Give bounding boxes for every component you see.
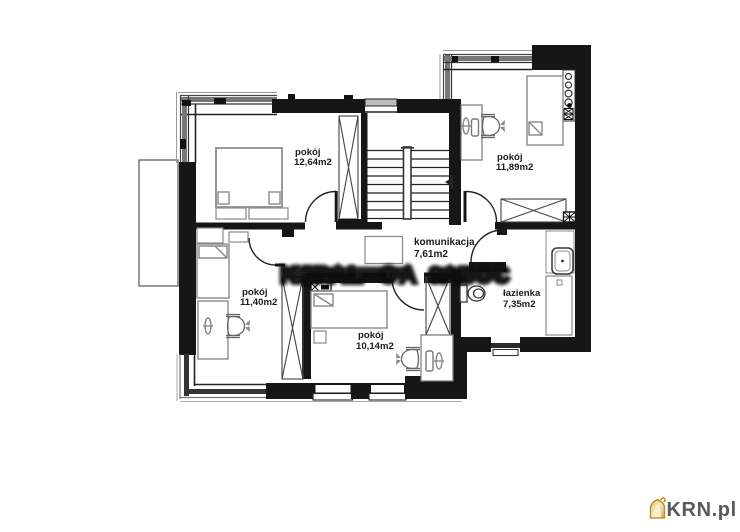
svg-text:łazienka: łazienka (503, 288, 541, 299)
svg-text:7,61m2: 7,61m2 (414, 249, 448, 260)
svg-text:9ABOC: 9ABOC (429, 262, 510, 288)
svg-text:10,14m2: 10,14m2 (356, 341, 394, 352)
svg-text:7,35m2: 7,35m2 (503, 299, 536, 310)
svg-text:12,64m2: 12,64m2 (294, 157, 332, 168)
svg-text:11,40m2: 11,40m2 (240, 297, 277, 308)
svg-text:KRN.pl: KRN.pl (667, 499, 737, 521)
svg-text:11,89m2: 11,89m2 (496, 162, 533, 173)
svg-text:komunikacja: komunikacja (414, 237, 475, 248)
svg-text:pokój: pokój (358, 330, 384, 341)
svg-text:KJPAL–OA: KJPAL–OA (280, 262, 418, 289)
